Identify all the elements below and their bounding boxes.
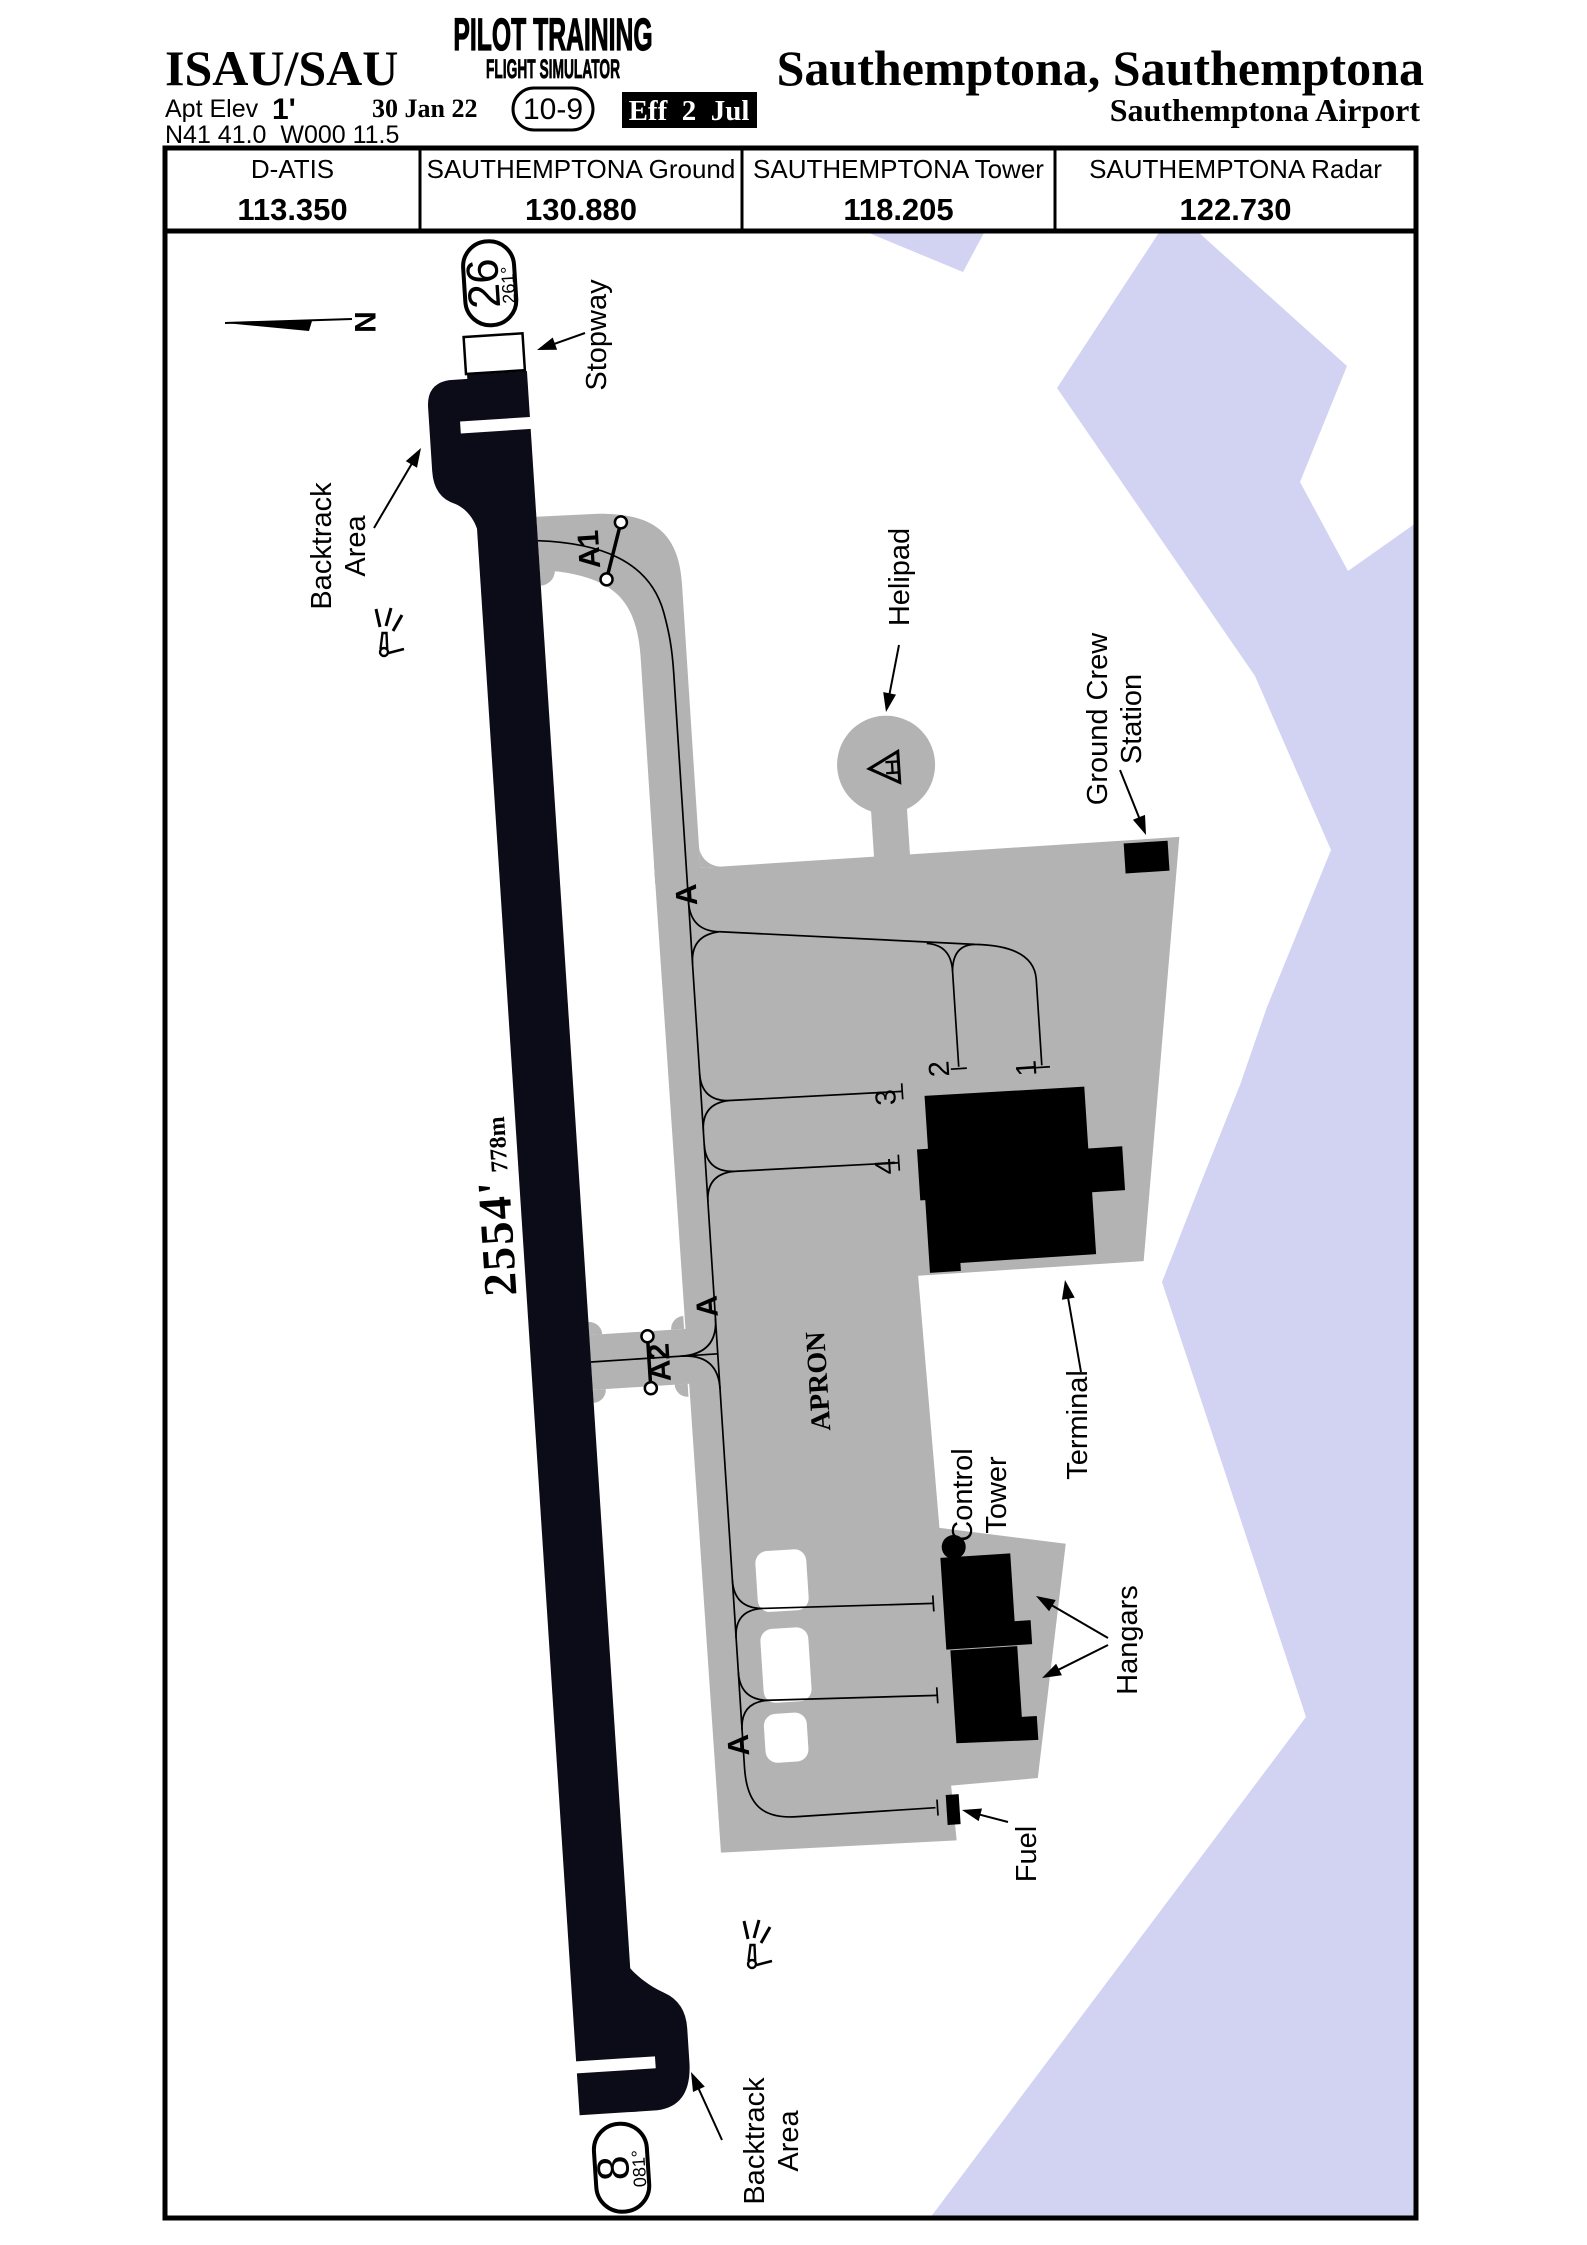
svg-text:Apt Elev: Apt Elev (165, 95, 259, 123)
svg-text:Area: Area (340, 515, 372, 577)
svg-text:A: A (691, 1294, 725, 1318)
svg-text:Sauthemptona, Sauthemptona: Sauthemptona, Sauthemptona (777, 40, 1424, 96)
svg-text:113.350: 113.350 (237, 192, 347, 227)
svg-text:PILOT TRAINING: PILOT TRAINING (453, 9, 652, 60)
svg-text:Tower: Tower (981, 1456, 1013, 1534)
svg-text:Ground Crew: Ground Crew (1082, 632, 1114, 806)
svg-text:ISAU/SAU: ISAU/SAU (165, 40, 398, 96)
svg-text:A2: A2 (642, 1342, 677, 1382)
svg-text:261°: 261° (497, 266, 519, 304)
svg-text:Terminal: Terminal (1062, 1370, 1094, 1480)
svg-text:SAUTHEMPTONA Tower: SAUTHEMPTONA Tower (753, 154, 1044, 184)
svg-text:Area: Area (773, 2110, 805, 2172)
svg-text:Stopway: Stopway (581, 279, 613, 391)
svg-text:APRON: APRON (800, 1331, 837, 1432)
svg-text:Backtrack: Backtrack (306, 482, 338, 610)
svg-text:Helipad: Helipad (884, 528, 916, 626)
svg-text:A1: A1 (572, 529, 607, 569)
svg-text:FLIGHT SIMULATOR: FLIGHT SIMULATOR (486, 54, 620, 84)
svg-text:778m: 778m (484, 1116, 514, 1174)
svg-text:SAUTHEMPTONA Ground: SAUTHEMPTONA Ground (427, 154, 736, 184)
svg-text:081°: 081° (628, 2149, 650, 2187)
svg-text:2: 2 (923, 1060, 956, 1078)
svg-text:D-ATIS: D-ATIS (251, 154, 334, 184)
svg-text:A: A (722, 1733, 756, 1757)
svg-text:Station: Station (1116, 674, 1148, 764)
svg-text:130.880: 130.880 (525, 192, 637, 227)
svg-text:30 Jan 22: 30 Jan 22 (372, 94, 477, 123)
svg-text:N: N (350, 311, 383, 333)
svg-text:Hangars: Hangars (1112, 1585, 1144, 1695)
svg-text:2554': 2554' (468, 1178, 527, 1298)
svg-text:Eff 2 Jul: Eff 2 Jul (629, 95, 750, 127)
svg-text:Backtrack: Backtrack (739, 2077, 771, 2205)
svg-text:1: 1 (1010, 1059, 1043, 1077)
svg-text:4: 4 (870, 1157, 903, 1175)
svg-text:122.730: 122.730 (1179, 192, 1291, 227)
svg-text:3: 3 (870, 1088, 903, 1106)
svg-text:Sauthemptona Airport: Sauthemptona Airport (1110, 92, 1421, 128)
svg-text:N41 41.0 W000 11.5: N41 41.0 W000 11.5 (165, 121, 399, 149)
svg-text:Fuel: Fuel (1011, 1826, 1043, 1882)
svg-text:SAUTHEMPTONA Radar: SAUTHEMPTONA Radar (1089, 154, 1382, 184)
svg-text:A: A (670, 883, 704, 907)
svg-text:Control: Control (947, 1448, 979, 1542)
svg-text:118.205: 118.205 (843, 192, 953, 227)
svg-text:10-9: 10-9 (523, 93, 583, 126)
